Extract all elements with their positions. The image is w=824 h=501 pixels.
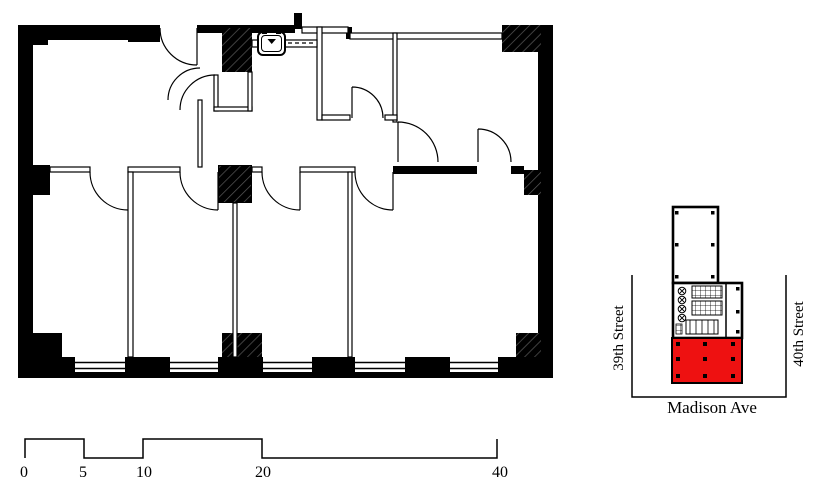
window bbox=[450, 357, 498, 372]
architectural-drawing-page: 39th Street 40th Street Madison Ave 0 5 … bbox=[0, 0, 824, 501]
door-swing bbox=[352, 87, 383, 118]
scale-bar-line bbox=[25, 439, 497, 458]
column-hatched bbox=[502, 25, 541, 52]
scale-label-20: 20 bbox=[255, 464, 271, 481]
door-swing bbox=[262, 172, 300, 210]
elevator-icon bbox=[678, 296, 686, 304]
drawing-canvas: 39th Street 40th Street Madison Ave 0 5 … bbox=[0, 0, 824, 501]
scale-label-5: 5 bbox=[79, 464, 87, 481]
column-hatched bbox=[516, 333, 541, 357]
window bbox=[170, 357, 218, 372]
column-hatched bbox=[222, 28, 252, 72]
door-swing bbox=[398, 122, 438, 162]
door-swing bbox=[180, 172, 218, 210]
door-swing bbox=[90, 172, 128, 210]
street-label-39th: 39th Street bbox=[611, 304, 627, 370]
key-map: 39th Street 40th Street Madison Ave bbox=[611, 207, 807, 417]
door-swing bbox=[160, 28, 197, 65]
door-swing bbox=[478, 129, 511, 162]
stair-block bbox=[692, 301, 722, 315]
door-swing bbox=[355, 172, 393, 210]
elevator-icon bbox=[678, 287, 686, 295]
scale-label-40: 40 bbox=[492, 464, 508, 481]
scale-label-0: 0 bbox=[20, 464, 28, 481]
elevator-icon bbox=[678, 314, 686, 322]
stair-block bbox=[692, 286, 722, 298]
key-map-highlight-red bbox=[672, 338, 742, 383]
column-hatched bbox=[222, 333, 262, 357]
door-swing bbox=[168, 68, 200, 100]
column-hatched bbox=[524, 170, 541, 195]
doors bbox=[90, 28, 511, 210]
elevator-icon bbox=[678, 305, 686, 313]
interior-walls bbox=[50, 27, 502, 357]
key-map-building bbox=[672, 207, 742, 383]
wall-stub bbox=[294, 13, 302, 29]
scale-bar: 0 5 10 20 40 bbox=[20, 439, 508, 481]
scale-label-10: 10 bbox=[136, 464, 152, 481]
column-hatched bbox=[219, 166, 251, 202]
window bbox=[75, 357, 125, 372]
window bbox=[263, 357, 312, 372]
window bbox=[355, 357, 405, 372]
column bbox=[33, 165, 50, 195]
avenue-label-madison: Madison Ave bbox=[667, 398, 757, 417]
floor-plan bbox=[18, 13, 553, 378]
street-label-40th: 40th Street bbox=[791, 300, 807, 366]
